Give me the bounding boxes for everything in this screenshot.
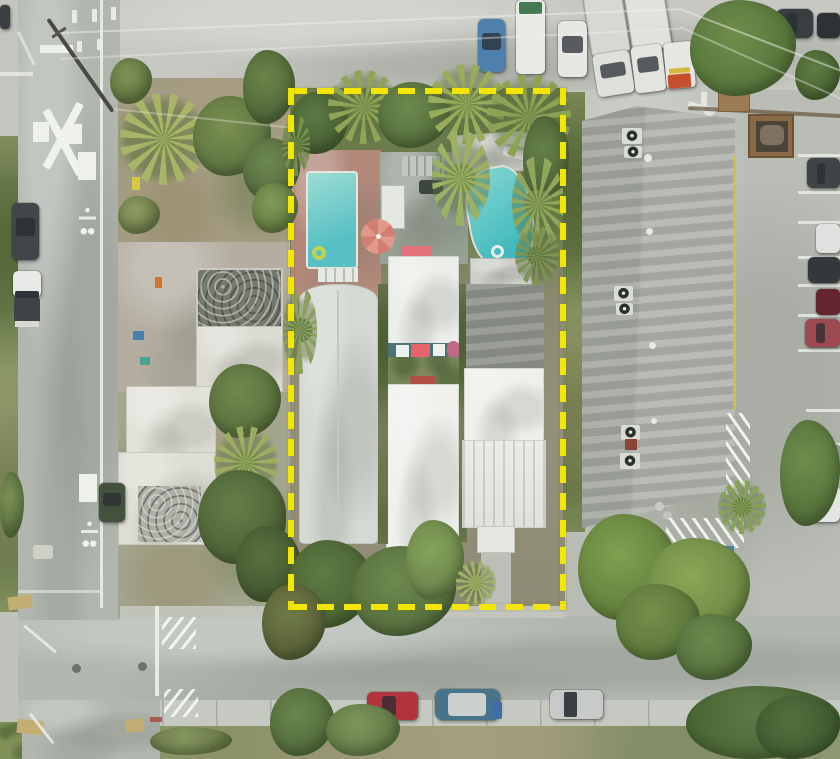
bike-marking-1	[79, 205, 96, 237]
palm-se-building	[718, 480, 766, 534]
aerial-photo: Aerial drone photograph of a residential…	[0, 0, 840, 759]
roof-pipe-2	[701, 92, 707, 108]
boundary-dash-bottom	[290, 604, 566, 610]
parked-car-w1	[12, 203, 39, 260]
crosswalk-hatch-1	[162, 617, 196, 649]
sedan-white-top	[558, 21, 587, 77]
boundary-dash-top	[290, 88, 566, 94]
loungers-nw	[318, 268, 358, 282]
van-green-stripe	[519, 2, 542, 14]
ac-unit-2	[624, 146, 642, 158]
bus-front-red	[667, 73, 691, 89]
van-1-windows	[599, 61, 627, 79]
silver-car-glass	[564, 692, 577, 717]
pool-right-float	[491, 245, 504, 258]
building-mid-upper	[388, 256, 459, 344]
palm-south-walk	[456, 561, 496, 605]
parking-line-7	[798, 349, 840, 352]
green-car-west-windows	[103, 493, 121, 505]
parked-car-e5-windows	[816, 323, 825, 343]
building-right-ridged	[462, 440, 546, 528]
sedan-white-top-windows	[562, 36, 582, 54]
parked-car-e2	[816, 224, 840, 253]
van-2-windows	[636, 56, 659, 74]
crosswalk-hatch-2	[164, 689, 198, 717]
manhole-2	[138, 662, 147, 671]
building-right-gray	[466, 284, 544, 370]
stop-line-south	[18, 590, 100, 593]
curb-paint-red	[150, 717, 162, 722]
parked-car-e1	[807, 158, 840, 188]
edge-line-nw	[0, 72, 33, 76]
lot-marker-yellow	[132, 177, 140, 190]
palm-pool-south	[515, 226, 559, 286]
arrow-marking-2: ↑	[79, 474, 97, 502]
roof-vent-1	[644, 154, 652, 162]
curb-ramp-pad-3	[125, 718, 144, 733]
shed-south	[477, 526, 515, 553]
manhole-1	[72, 664, 81, 673]
roof-vent-3	[649, 342, 656, 349]
ac-unit-3	[614, 286, 633, 301]
truck-w-windshield	[15, 291, 39, 298]
lane-dash-1	[72, 10, 77, 23]
parked-car-e5	[805, 319, 840, 347]
building-right-white	[464, 368, 544, 442]
rxr-letter-left: R	[33, 122, 49, 142]
arrow-marking-1: ↑	[78, 152, 96, 180]
ac-unit-6	[620, 453, 640, 469]
ac-unit-1	[622, 128, 642, 144]
boundary-dash-left	[288, 88, 294, 610]
ac-unit-4	[616, 303, 633, 315]
parking-line-8	[806, 409, 840, 412]
bike-marking-2	[81, 519, 98, 549]
lane-dash-5	[97, 39, 102, 50]
umbrella-center	[376, 234, 381, 239]
ac-unit-red	[625, 439, 637, 450]
parking-line-1	[798, 154, 840, 157]
parked-car-e4	[816, 289, 840, 315]
van-1	[592, 49, 635, 97]
palm-west-edge	[282, 114, 310, 176]
boundary-dash-right	[560, 88, 566, 610]
yard-object-orange	[155, 277, 162, 288]
neighbor-annex-roof	[138, 486, 201, 542]
pool-left-float	[312, 246, 326, 260]
dumpster-junk	[760, 125, 784, 145]
blue-bin	[491, 702, 502, 719]
roof-vent-4	[651, 418, 657, 424]
teal-suv-roof	[448, 693, 486, 716]
garden-strip-west	[378, 284, 388, 544]
truck-w-bed	[14, 298, 40, 322]
ac-unit-5	[621, 425, 640, 440]
car-blue-top-windows	[482, 33, 501, 50]
lane-dash-2	[92, 9, 97, 22]
car-ne-edge	[817, 13, 840, 38]
parked-car-w1-windows	[16, 218, 35, 236]
rxr-letter-right: R	[66, 124, 82, 144]
parking-line-2	[798, 191, 840, 194]
white-table-2	[433, 344, 445, 356]
parked-car-e3	[808, 257, 840, 283]
roof-vent-5	[655, 502, 664, 511]
parked-car-e1-windows	[817, 163, 826, 184]
truck-w-tail	[15, 321, 39, 327]
red-chairs	[410, 376, 436, 384]
van-2	[630, 43, 666, 93]
yard-object-teal	[140, 357, 150, 365]
roof-ridge-left	[337, 290, 339, 540]
crosswalk-edge-line	[155, 606, 159, 696]
white-object-west	[33, 545, 53, 559]
lane-dash-3	[111, 7, 116, 20]
roof-vent-2	[646, 228, 653, 235]
green-car-west	[99, 483, 125, 522]
neighbor-roof-dark	[196, 268, 283, 328]
car-blue-top	[478, 19, 505, 72]
yellow-pipe	[733, 155, 736, 410]
yard-object-blue	[133, 331, 144, 340]
palm-pool-west	[432, 130, 490, 226]
parking-line-5	[798, 284, 840, 287]
car-nw-corner	[0, 5, 10, 29]
commercial-building	[582, 106, 735, 528]
lane-dash-4	[77, 41, 82, 52]
